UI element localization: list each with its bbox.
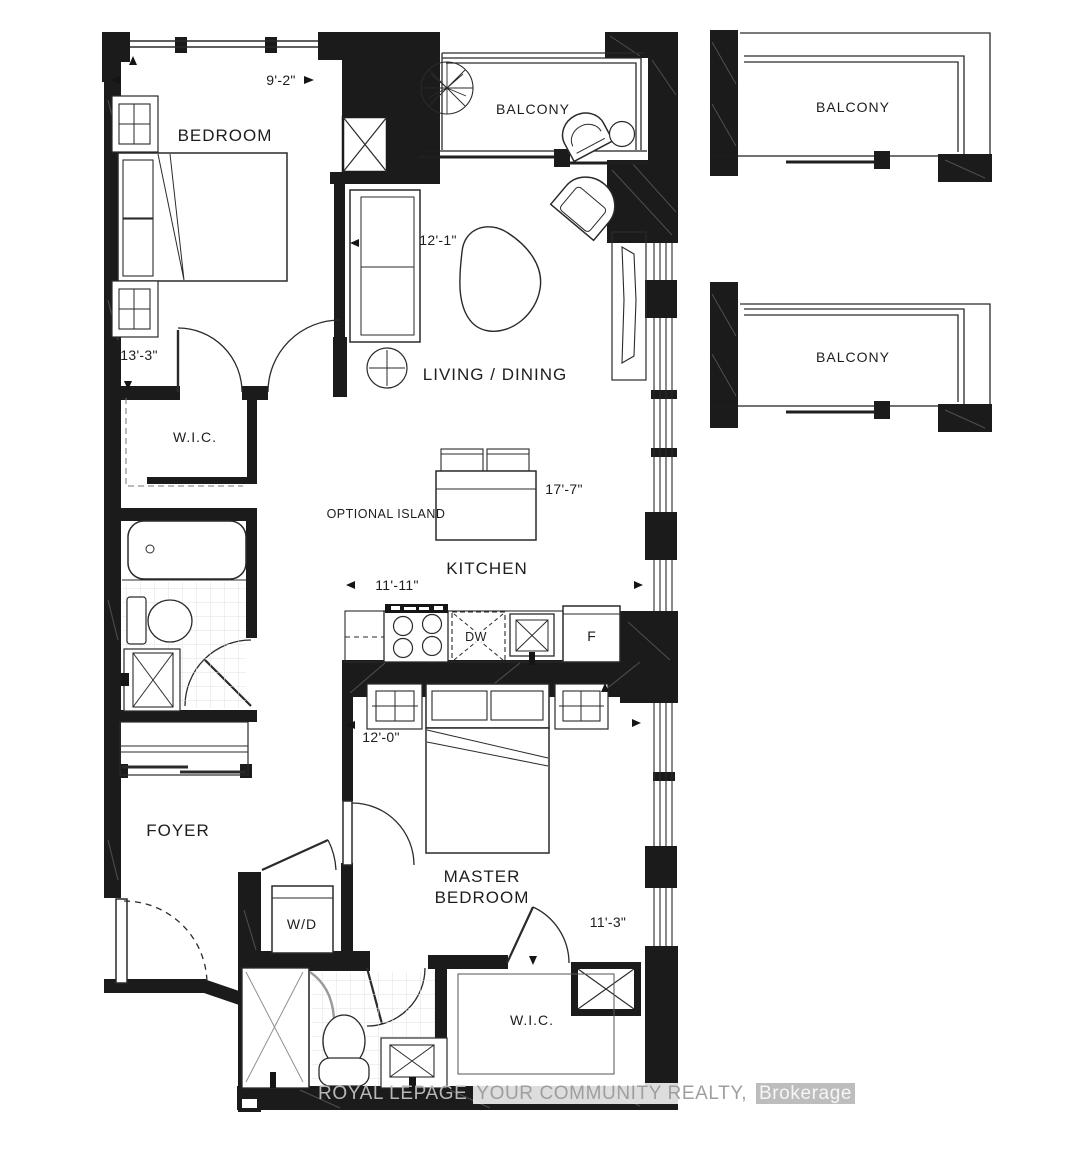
- dim-unit-length: 17'-7": [545, 481, 582, 497]
- label-washer-dryer: W/D: [287, 916, 317, 932]
- master-door-arc: [352, 803, 414, 865]
- floor-plan-drawing: [0, 0, 1082, 1153]
- toilet-tank: [127, 597, 146, 644]
- wd-door-leaf: [262, 840, 328, 870]
- toilet-bowl: [148, 600, 192, 642]
- room-label-kitchen: KITCHEN: [446, 559, 528, 579]
- watermark-middle: YOUR COMMUNITY REALTY,: [473, 1083, 750, 1104]
- wic-hall-door-arc: [178, 328, 242, 392]
- room-label-balcony-top: BALCONY: [496, 101, 570, 117]
- room-label-living-dining: LIVING / DINING: [423, 365, 567, 385]
- dim-master-width: 12'-0": [362, 729, 399, 745]
- patio-table: [610, 122, 635, 147]
- foyer-closet: [120, 722, 248, 775]
- main-bathroom: [121, 521, 246, 711]
- tv: [622, 247, 636, 363]
- stool: [441, 449, 483, 471]
- entry-door-arc: [124, 901, 207, 984]
- master-bed: [426, 728, 549, 853]
- wic-master-door-arc: [533, 907, 569, 963]
- wd-door-arc: [328, 840, 336, 870]
- bedroom-door-arc: [268, 320, 340, 392]
- watermark-suffix: Brokerage: [756, 1083, 855, 1104]
- ensuite-bathroom: [242, 968, 447, 1091]
- pillow: [432, 691, 487, 720]
- dim-bedroom-depth: 13'-3": [120, 347, 157, 363]
- stool: [487, 449, 529, 471]
- tv-console: [612, 232, 646, 380]
- floor-plan: BEDROOM BALCONY BALCONY BALCONY LIVING /…: [0, 0, 1082, 1153]
- coffee-table: [460, 227, 541, 331]
- wall-notch: [242, 1099, 257, 1108]
- wic-master-door-leaf: [507, 907, 533, 963]
- kitchen-island: [436, 471, 536, 540]
- room-label-master-bedroom: MASTER BEDROOM: [416, 866, 548, 909]
- label-dishwasher: DW: [465, 630, 487, 644]
- dim-master-depth: 11'-3": [590, 914, 626, 930]
- room-label-balcony-right-2: BALCONY: [816, 349, 890, 365]
- master-door-leaf: [343, 801, 352, 865]
- brokerage-watermark: ROYAL LEPAGE YOUR COMMUNITY REALTY, Brok…: [318, 1083, 855, 1105]
- toilet-base: [319, 1058, 369, 1086]
- watermark-brand: ROYAL LEPAGE: [318, 1083, 467, 1104]
- room-label-wic-hall: W.I.C.: [173, 429, 217, 445]
- room-label-wic-master: W.I.C.: [510, 1012, 554, 1028]
- entry-door-leaf: [116, 899, 127, 983]
- vanity: [124, 649, 180, 711]
- living-furniture: [350, 166, 646, 388]
- pillow: [491, 691, 543, 720]
- room-label-foyer: FOYER: [146, 821, 210, 841]
- dim-living-width: 12'-1": [419, 232, 456, 248]
- master-furniture: [367, 684, 608, 853]
- label-fridge: F: [587, 628, 597, 644]
- dim-bedroom-width: 9'-2": [266, 72, 295, 88]
- label-optional-island: OPTIONAL ISLAND: [327, 507, 446, 521]
- room-label-balcony-right-1: BALCONY: [816, 99, 890, 115]
- room-label-bedroom: BEDROOM: [178, 126, 273, 146]
- stove: [384, 611, 448, 662]
- dim-kitchen-width: 11'-11": [375, 577, 418, 593]
